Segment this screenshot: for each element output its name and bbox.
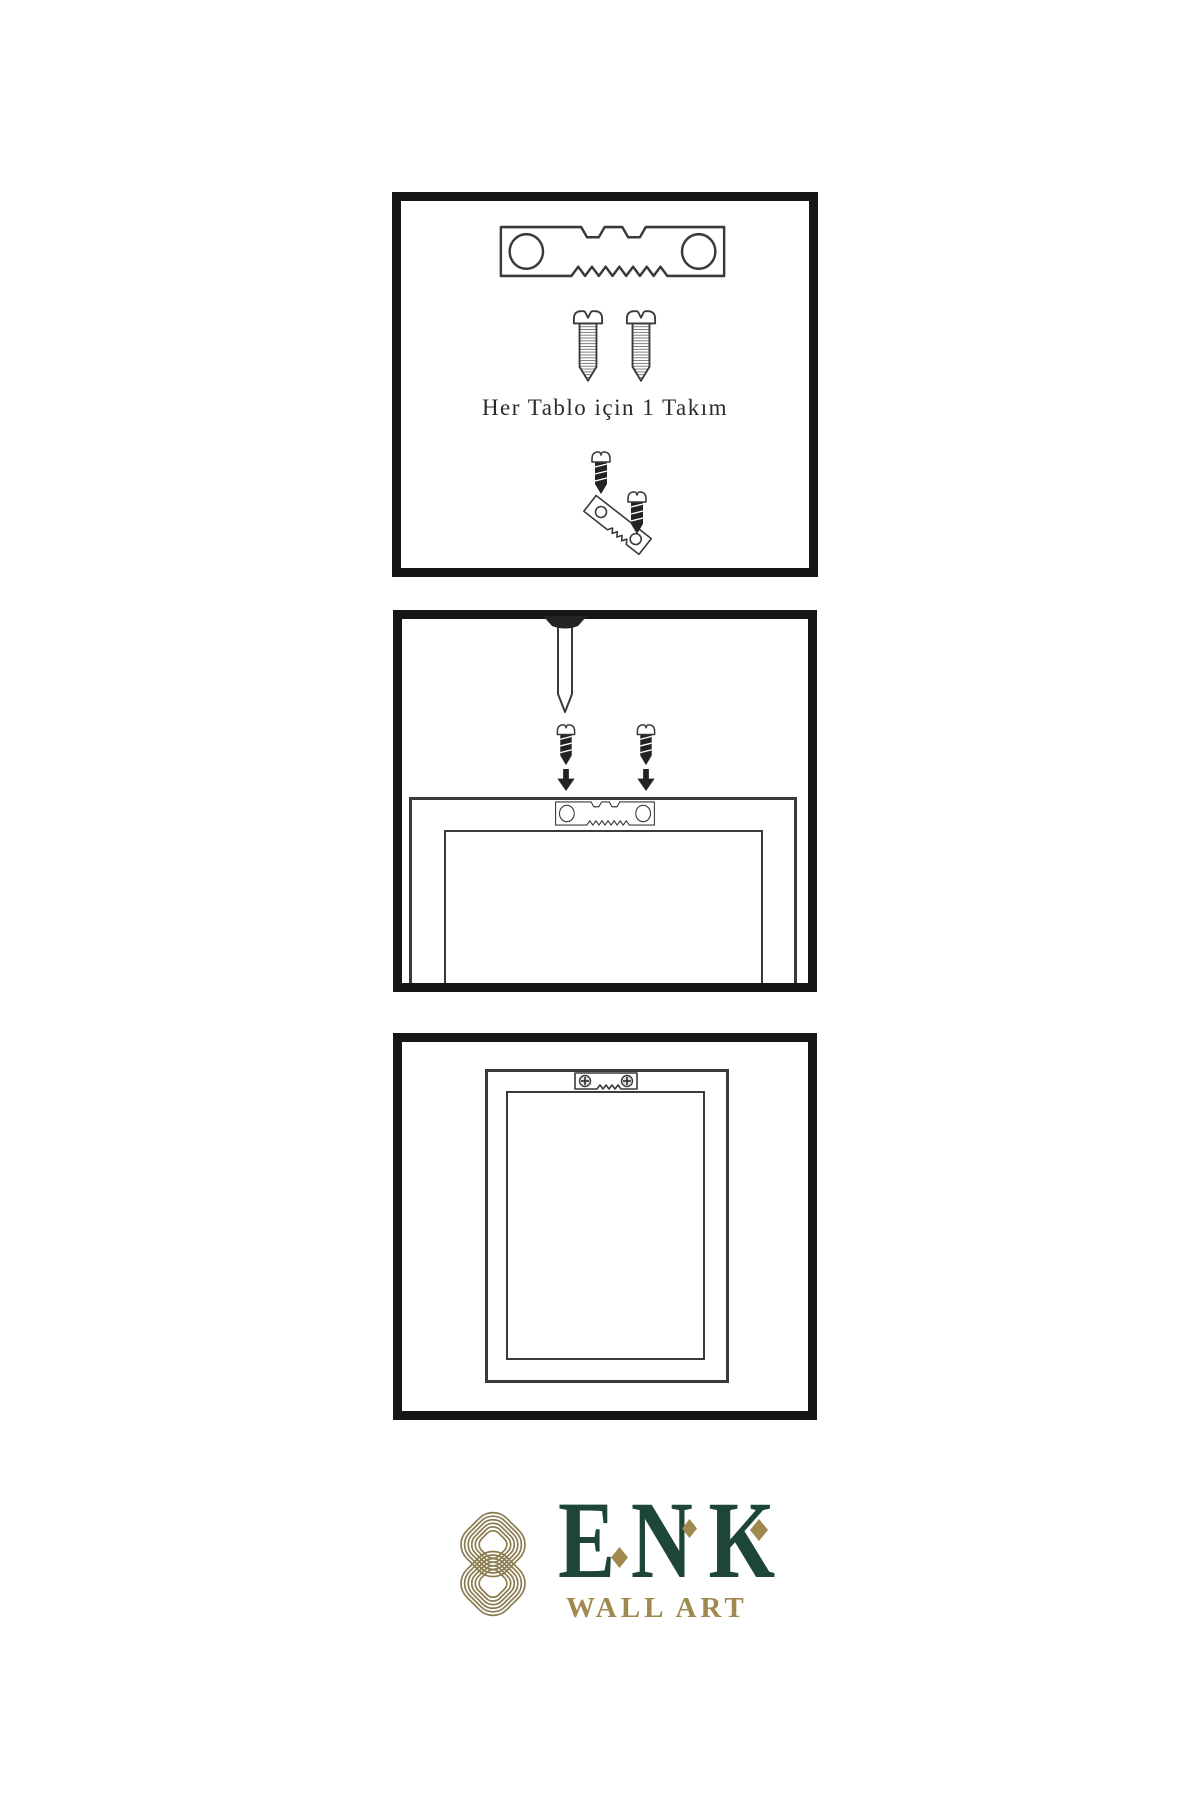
screw-icon [625,307,657,385]
screw-icon [635,723,657,767]
step-panel-wall-install [393,610,817,992]
screw-icon [555,723,577,767]
instruction-sheet: Her Tablo için 1 Takım [0,0,1200,1800]
arrow-down-icon [637,769,655,792]
arrow-down-icon [557,769,575,792]
interlaced-knot-icon [430,1501,556,1627]
frame-back-inner-outline [506,1091,705,1360]
step-panel-hardware-kit: Her Tablo için 1 Takım [392,192,818,577]
sawtooth-hanger-icon [553,800,657,827]
brand-subtitle: WALL ART [566,1592,748,1625]
sawtooth-hanger-mounted-icon [573,1071,639,1091]
brand-name: ENK [558,1485,791,1595]
sawtooth-hanger-icon [495,223,730,280]
kit-caption: Her Tablo için 1 Takım [401,395,809,421]
step-panel-mounted-frame [393,1033,817,1420]
screw-icon [572,307,604,385]
nail-icon [543,615,587,717]
hanger-assembly-icon [575,450,670,562]
brand-logo: ENK WALL ART [430,1495,810,1655]
frame-back-inner-outline [444,830,763,983]
